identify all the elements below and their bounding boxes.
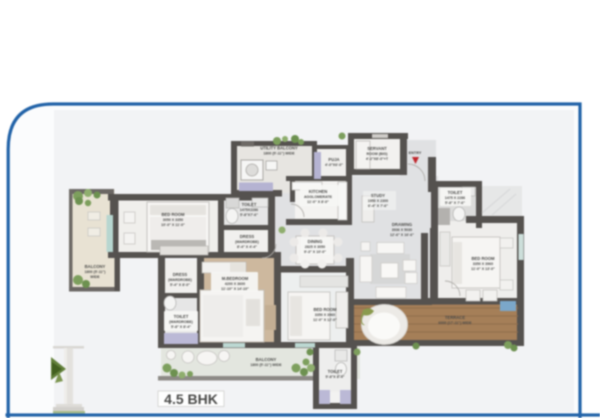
svg-text:TOILET: TOILET xyxy=(448,190,463,195)
svg-text:5'-8"X 8'-4": 5'-8"X 8'-4" xyxy=(326,375,345,379)
svg-text:TOILET: TOILET xyxy=(328,369,343,374)
svg-text:KITCHEN: KITCHEN xyxy=(309,189,328,194)
svg-text:WIDE: WIDE xyxy=(90,275,100,279)
svg-text:4'-2"X8'-0"+T: 4'-2"X8'-0"+T xyxy=(366,157,389,161)
svg-text:4200 X 3600: 4200 X 3600 xyxy=(225,282,245,286)
svg-text:10'-0" X 11'-0": 10'-0" X 11'-0" xyxy=(161,223,185,227)
svg-text:6000 (17'-11") WIDE: 6000 (17'-11") WIDE xyxy=(438,321,472,325)
svg-text:1475 X 2286: 1475 X 2286 xyxy=(445,196,465,200)
svg-text:4.5 BHK: 4.5 BHK xyxy=(164,391,218,407)
svg-text:12'-6" X 16'-6": 12'-6" X 16'-6" xyxy=(390,233,414,237)
svg-text:5'-8"X7'-6": 5'-8"X7'-6" xyxy=(240,213,258,217)
svg-text:BED ROOM: BED ROOM xyxy=(471,256,495,261)
svg-text:UTILITY BALCONY: UTILITY BALCONY xyxy=(260,146,298,151)
svg-text:ROOM (BIG): ROOM (BIG) xyxy=(367,152,389,156)
svg-text:BED ROOM: BED ROOM xyxy=(313,307,337,312)
svg-text:DINING: DINING xyxy=(308,239,323,244)
svg-text:TOILET: TOILET xyxy=(242,202,257,207)
svg-text:3936 X 5030: 3936 X 5030 xyxy=(392,228,412,232)
svg-text:8'-4" X 4'-4": 8'-4" X 4'-4" xyxy=(237,245,257,249)
svg-text:1800 (5'-11") WIDE: 1800 (5'-11") WIDE xyxy=(250,363,282,367)
svg-text:(WARDROBE): (WARDROBE) xyxy=(235,240,260,244)
svg-text:(WARDROBE): (WARDROBE) xyxy=(169,320,194,324)
svg-text:(WARDROBE): (WARDROBE) xyxy=(168,278,193,282)
svg-text:11'-0" X 13'-0": 11'-0" X 13'-0" xyxy=(471,267,495,271)
svg-text:TERRACE: TERRACE xyxy=(445,315,465,320)
svg-text:1475X2286: 1475X2286 xyxy=(240,208,258,212)
svg-text:ENTRY: ENTRY xyxy=(409,151,422,155)
svg-text:1800 (5'-11"): 1800 (5'-11") xyxy=(85,270,107,274)
svg-text:1800 (5'-11") WIDE: 1800 (5'-11") WIDE xyxy=(263,152,295,156)
svg-text:5'-8" X 8'-4": 5'-8" X 8'-4" xyxy=(171,325,191,329)
svg-text:5'-4" X 8'-0": 5'-4" X 8'-0" xyxy=(170,283,190,287)
svg-text:DRESS: DRESS xyxy=(173,272,188,277)
svg-text:1950 X 2300: 1950 X 2300 xyxy=(368,199,388,203)
svg-text:9'-3" X 10'-0": 9'-3" X 10'-0" xyxy=(304,250,326,254)
svg-text:TOILET: TOILET xyxy=(174,314,189,319)
svg-text:BALCONY: BALCONY xyxy=(256,357,277,362)
svg-text:DRESS: DRESS xyxy=(240,234,255,239)
svg-text:5'-8" X 7'-6": 5'-8" X 7'-6" xyxy=(445,201,465,205)
svg-text:SERVANT: SERVANT xyxy=(367,146,387,151)
svg-text:4'-0"X6'-0": 4'-0"X6'-0" xyxy=(325,163,343,167)
svg-text:M.BEDROOM: M.BEDROOM xyxy=(222,276,249,281)
svg-text:11'-0" X 12'-0": 11'-0" X 12'-0" xyxy=(313,318,337,322)
svg-text:3350 X 3960: 3350 X 3960 xyxy=(315,313,335,317)
svg-text:AGGLOMERATE: AGGLOMERATE xyxy=(304,195,333,199)
svg-text:BED ROOM: BED ROOM xyxy=(161,212,185,217)
svg-text:STUDY: STUDY xyxy=(371,193,385,198)
svg-text:11'-0" X 8'-0": 11'-0" X 8'-0" xyxy=(307,200,329,204)
svg-text:6'-4" X 7'-6": 6'-4" X 7'-6" xyxy=(368,204,388,208)
svg-text:3350 X 3960: 3350 X 3960 xyxy=(473,262,493,266)
svg-text:11'-10" X 14'-10": 11'-10" X 14'-10" xyxy=(221,287,249,291)
svg-text:3050 X 3350: 3050 X 3350 xyxy=(163,218,183,222)
svg-text:BALCONY: BALCONY xyxy=(85,264,106,269)
svg-text:2825 X 3050: 2825 X 3050 xyxy=(305,245,325,249)
svg-text:PUJA: PUJA xyxy=(328,157,339,162)
svg-text:DRAWING: DRAWING xyxy=(392,222,412,227)
